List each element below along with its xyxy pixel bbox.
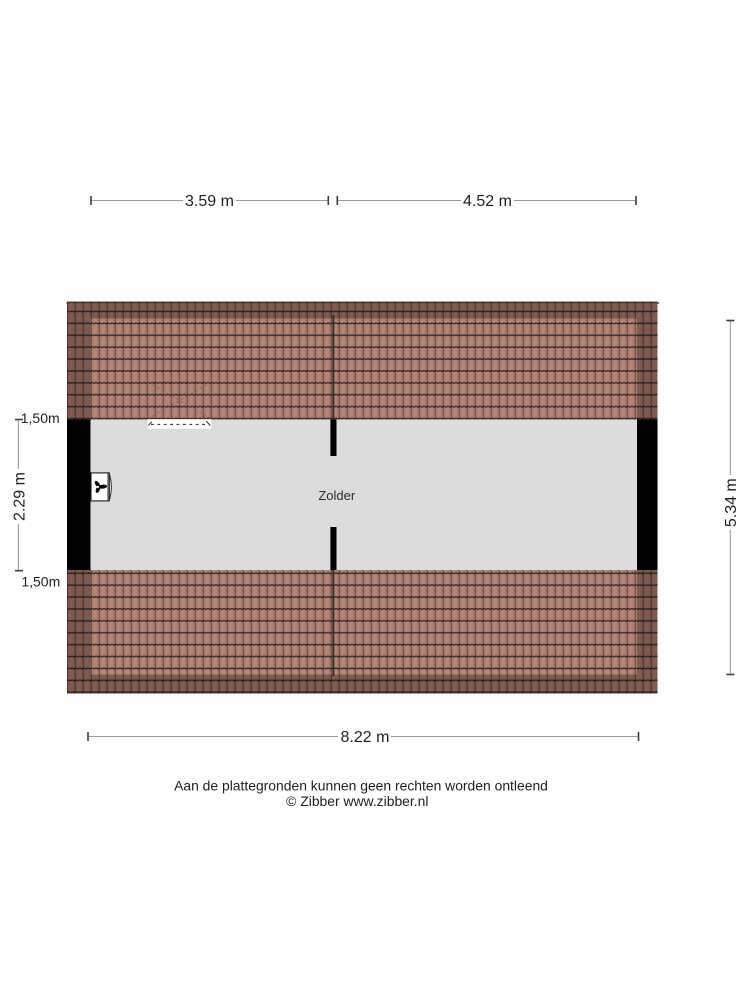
svg-text:4.52 m: 4.52 m bbox=[463, 193, 512, 210]
svg-text:8.22 m: 8.22 m bbox=[341, 729, 390, 746]
svg-text:5.34 m: 5.34 m bbox=[723, 478, 740, 527]
svg-text:3.59 m: 3.59 m bbox=[185, 193, 234, 210]
svg-text:Zolder: Zolder bbox=[318, 488, 356, 503]
svg-text:1,50m: 1,50m bbox=[21, 410, 60, 426]
svg-text:© Zibber www.zibber.nl: © Zibber www.zibber.nl bbox=[286, 793, 428, 809]
svg-text:1,50m: 1,50m bbox=[21, 574, 60, 590]
svg-text:2.29 m: 2.29 m bbox=[11, 472, 28, 521]
svg-text:Aan de plattegronden kunnen ge: Aan de plattegronden kunnen geen rechten… bbox=[174, 778, 548, 794]
